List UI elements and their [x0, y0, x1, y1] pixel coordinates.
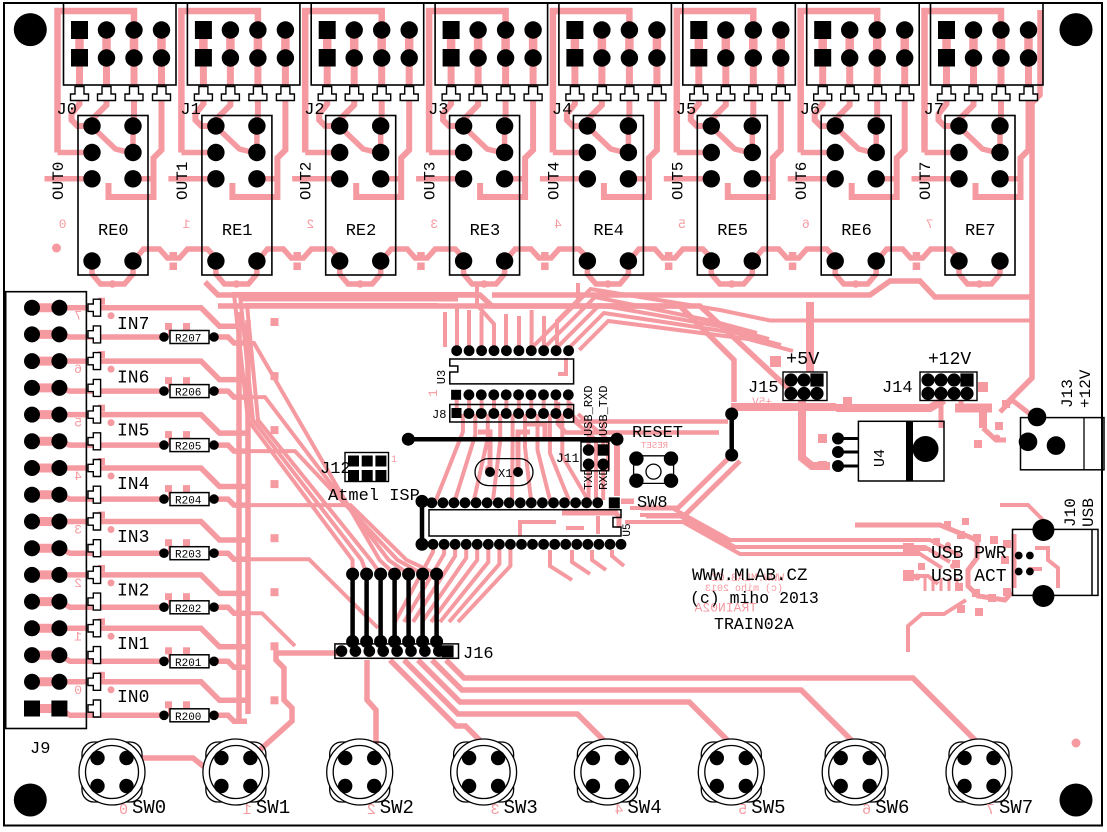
svg-text:+5V: +5V [752, 397, 772, 409]
svg-text:J11: J11 [556, 451, 580, 466]
svg-text:R205: R205 [175, 442, 201, 454]
svg-text:R207: R207 [175, 334, 201, 346]
svg-text:U4: U4 [872, 449, 889, 467]
svg-text:6: 6 [862, 802, 871, 819]
svg-text:OUT1: OUT1 [174, 162, 192, 200]
svg-text:SW7: SW7 [999, 797, 1033, 819]
svg-text:IN3: IN3 [117, 528, 149, 548]
svg-text:OUT3: OUT3 [422, 162, 440, 200]
svg-text:5: 5 [74, 416, 82, 431]
svg-text:R202: R202 [175, 604, 201, 616]
svg-text:3: 3 [74, 523, 82, 538]
svg-text:J14: J14 [882, 379, 913, 398]
svg-text:R206: R206 [175, 388, 201, 400]
svg-text:J0: J0 [57, 101, 77, 120]
svg-text:TXD: TXD [582, 468, 596, 490]
svg-text:R200: R200 [175, 712, 201, 724]
svg-text:IN0: IN0 [117, 688, 149, 708]
svg-text:1: 1 [391, 455, 397, 466]
svg-text:5: 5 [738, 802, 747, 819]
svg-text:4: 4 [614, 802, 623, 819]
svg-text:3: 3 [430, 217, 438, 232]
svg-text:SW2: SW2 [380, 797, 414, 819]
svg-text:J4: J4 [552, 101, 572, 120]
svg-text:IN1: IN1 [117, 635, 149, 655]
svg-text:SW0: SW0 [132, 797, 166, 819]
svg-text:USB PWR: USB PWR [931, 544, 1007, 564]
svg-text:1: 1 [426, 389, 441, 397]
svg-text:SW6: SW6 [875, 797, 909, 819]
svg-text:TRAIN02A: TRAIN02A [714, 615, 794, 634]
svg-text:RE6: RE6 [841, 222, 872, 241]
svg-text:IN7: IN7 [117, 315, 149, 335]
svg-text:5: 5 [678, 217, 686, 232]
svg-text:2: 2 [367, 802, 376, 819]
svg-text:RE3: RE3 [470, 222, 501, 241]
svg-text:USB ACT: USB ACT [931, 567, 1007, 587]
svg-text:+12V: +12V [1077, 369, 1095, 408]
svg-text:J8: J8 [432, 408, 446, 422]
svg-text:7: 7 [74, 309, 82, 324]
svg-text:OUT7: OUT7 [917, 162, 935, 200]
svg-text:0: 0 [74, 683, 82, 698]
svg-text:IN4: IN4 [117, 475, 149, 495]
svg-text:IN5: IN5 [117, 422, 149, 442]
svg-text:RESET: RESET [640, 441, 668, 451]
svg-text:J16: J16 [463, 645, 494, 664]
svg-text:7: 7 [926, 217, 934, 232]
svg-text:U5: U5 [622, 523, 634, 536]
svg-text:OUT4: OUT4 [545, 162, 563, 200]
svg-text:SW5: SW5 [751, 797, 785, 819]
svg-text:OUT0: OUT0 [50, 162, 68, 200]
svg-text:1: 1 [74, 629, 82, 644]
svg-text:USB_TXD: USB_TXD [597, 386, 611, 436]
svg-text:OUT2: OUT2 [298, 162, 316, 200]
svg-text:7: 7 [986, 802, 995, 819]
svg-text:RXD: RXD [597, 468, 611, 490]
svg-text:J12: J12 [320, 460, 351, 479]
svg-text:1: 1 [243, 802, 252, 819]
svg-text:SW4: SW4 [627, 797, 661, 819]
svg-text:6: 6 [74, 362, 82, 377]
svg-text:OUT5: OUT5 [669, 162, 687, 200]
svg-text:6: 6 [802, 217, 810, 232]
svg-text:0: 0 [59, 217, 67, 232]
svg-text:4: 4 [554, 217, 562, 232]
svg-text:J10: J10 [1062, 498, 1080, 527]
svg-text:3: 3 [491, 802, 500, 819]
svg-text:(c) miho 2013: (c) miho 2013 [690, 589, 819, 608]
svg-text:RE2: RE2 [346, 222, 377, 241]
svg-text:J15: J15 [748, 379, 779, 398]
svg-text:SW1: SW1 [256, 797, 290, 819]
svg-text:SW3: SW3 [504, 797, 538, 819]
svg-text:RE4: RE4 [593, 222, 624, 241]
svg-text:2: 2 [306, 217, 314, 232]
svg-text:WWW.MLAB.CZ: WWW.MLAB.CZ [692, 566, 808, 586]
svg-text:0: 0 [119, 802, 128, 819]
svg-text:J13: J13 [1059, 379, 1077, 408]
svg-text:J2: J2 [304, 101, 324, 120]
svg-text:OUT6: OUT6 [793, 162, 811, 200]
svg-text:IN6: IN6 [117, 368, 149, 388]
svg-text:USB: USB [1080, 498, 1098, 527]
svg-text:RE5: RE5 [717, 222, 748, 241]
svg-text:+5V: +5V [786, 349, 819, 370]
svg-text:4: 4 [74, 469, 82, 484]
svg-text:RE0: RE0 [98, 222, 129, 241]
svg-text:J5: J5 [676, 101, 696, 120]
svg-text:IN2: IN2 [117, 582, 149, 602]
svg-text:RE1: RE1 [222, 222, 253, 241]
svg-text:X1: X1 [498, 467, 512, 481]
svg-text:Atmel ISP: Atmel ISP [328, 487, 420, 506]
svg-text:R201: R201 [175, 658, 202, 670]
svg-text:SW8: SW8 [637, 494, 668, 513]
svg-text:2: 2 [74, 576, 82, 591]
svg-text:R204: R204 [175, 496, 202, 508]
svg-text:USB_RXD: USB_RXD [582, 386, 596, 436]
svg-text:1: 1 [182, 217, 190, 232]
svg-text:J3: J3 [428, 101, 448, 120]
svg-text:R203: R203 [175, 550, 201, 562]
svg-text:U3: U3 [435, 370, 449, 384]
svg-text:J1: J1 [180, 101, 200, 120]
svg-text:J9: J9 [30, 740, 50, 759]
svg-text:RE7: RE7 [965, 222, 996, 241]
svg-text:+12V: +12V [928, 350, 971, 370]
svg-text:J6: J6 [800, 101, 820, 120]
svg-text:J7: J7 [924, 101, 944, 120]
